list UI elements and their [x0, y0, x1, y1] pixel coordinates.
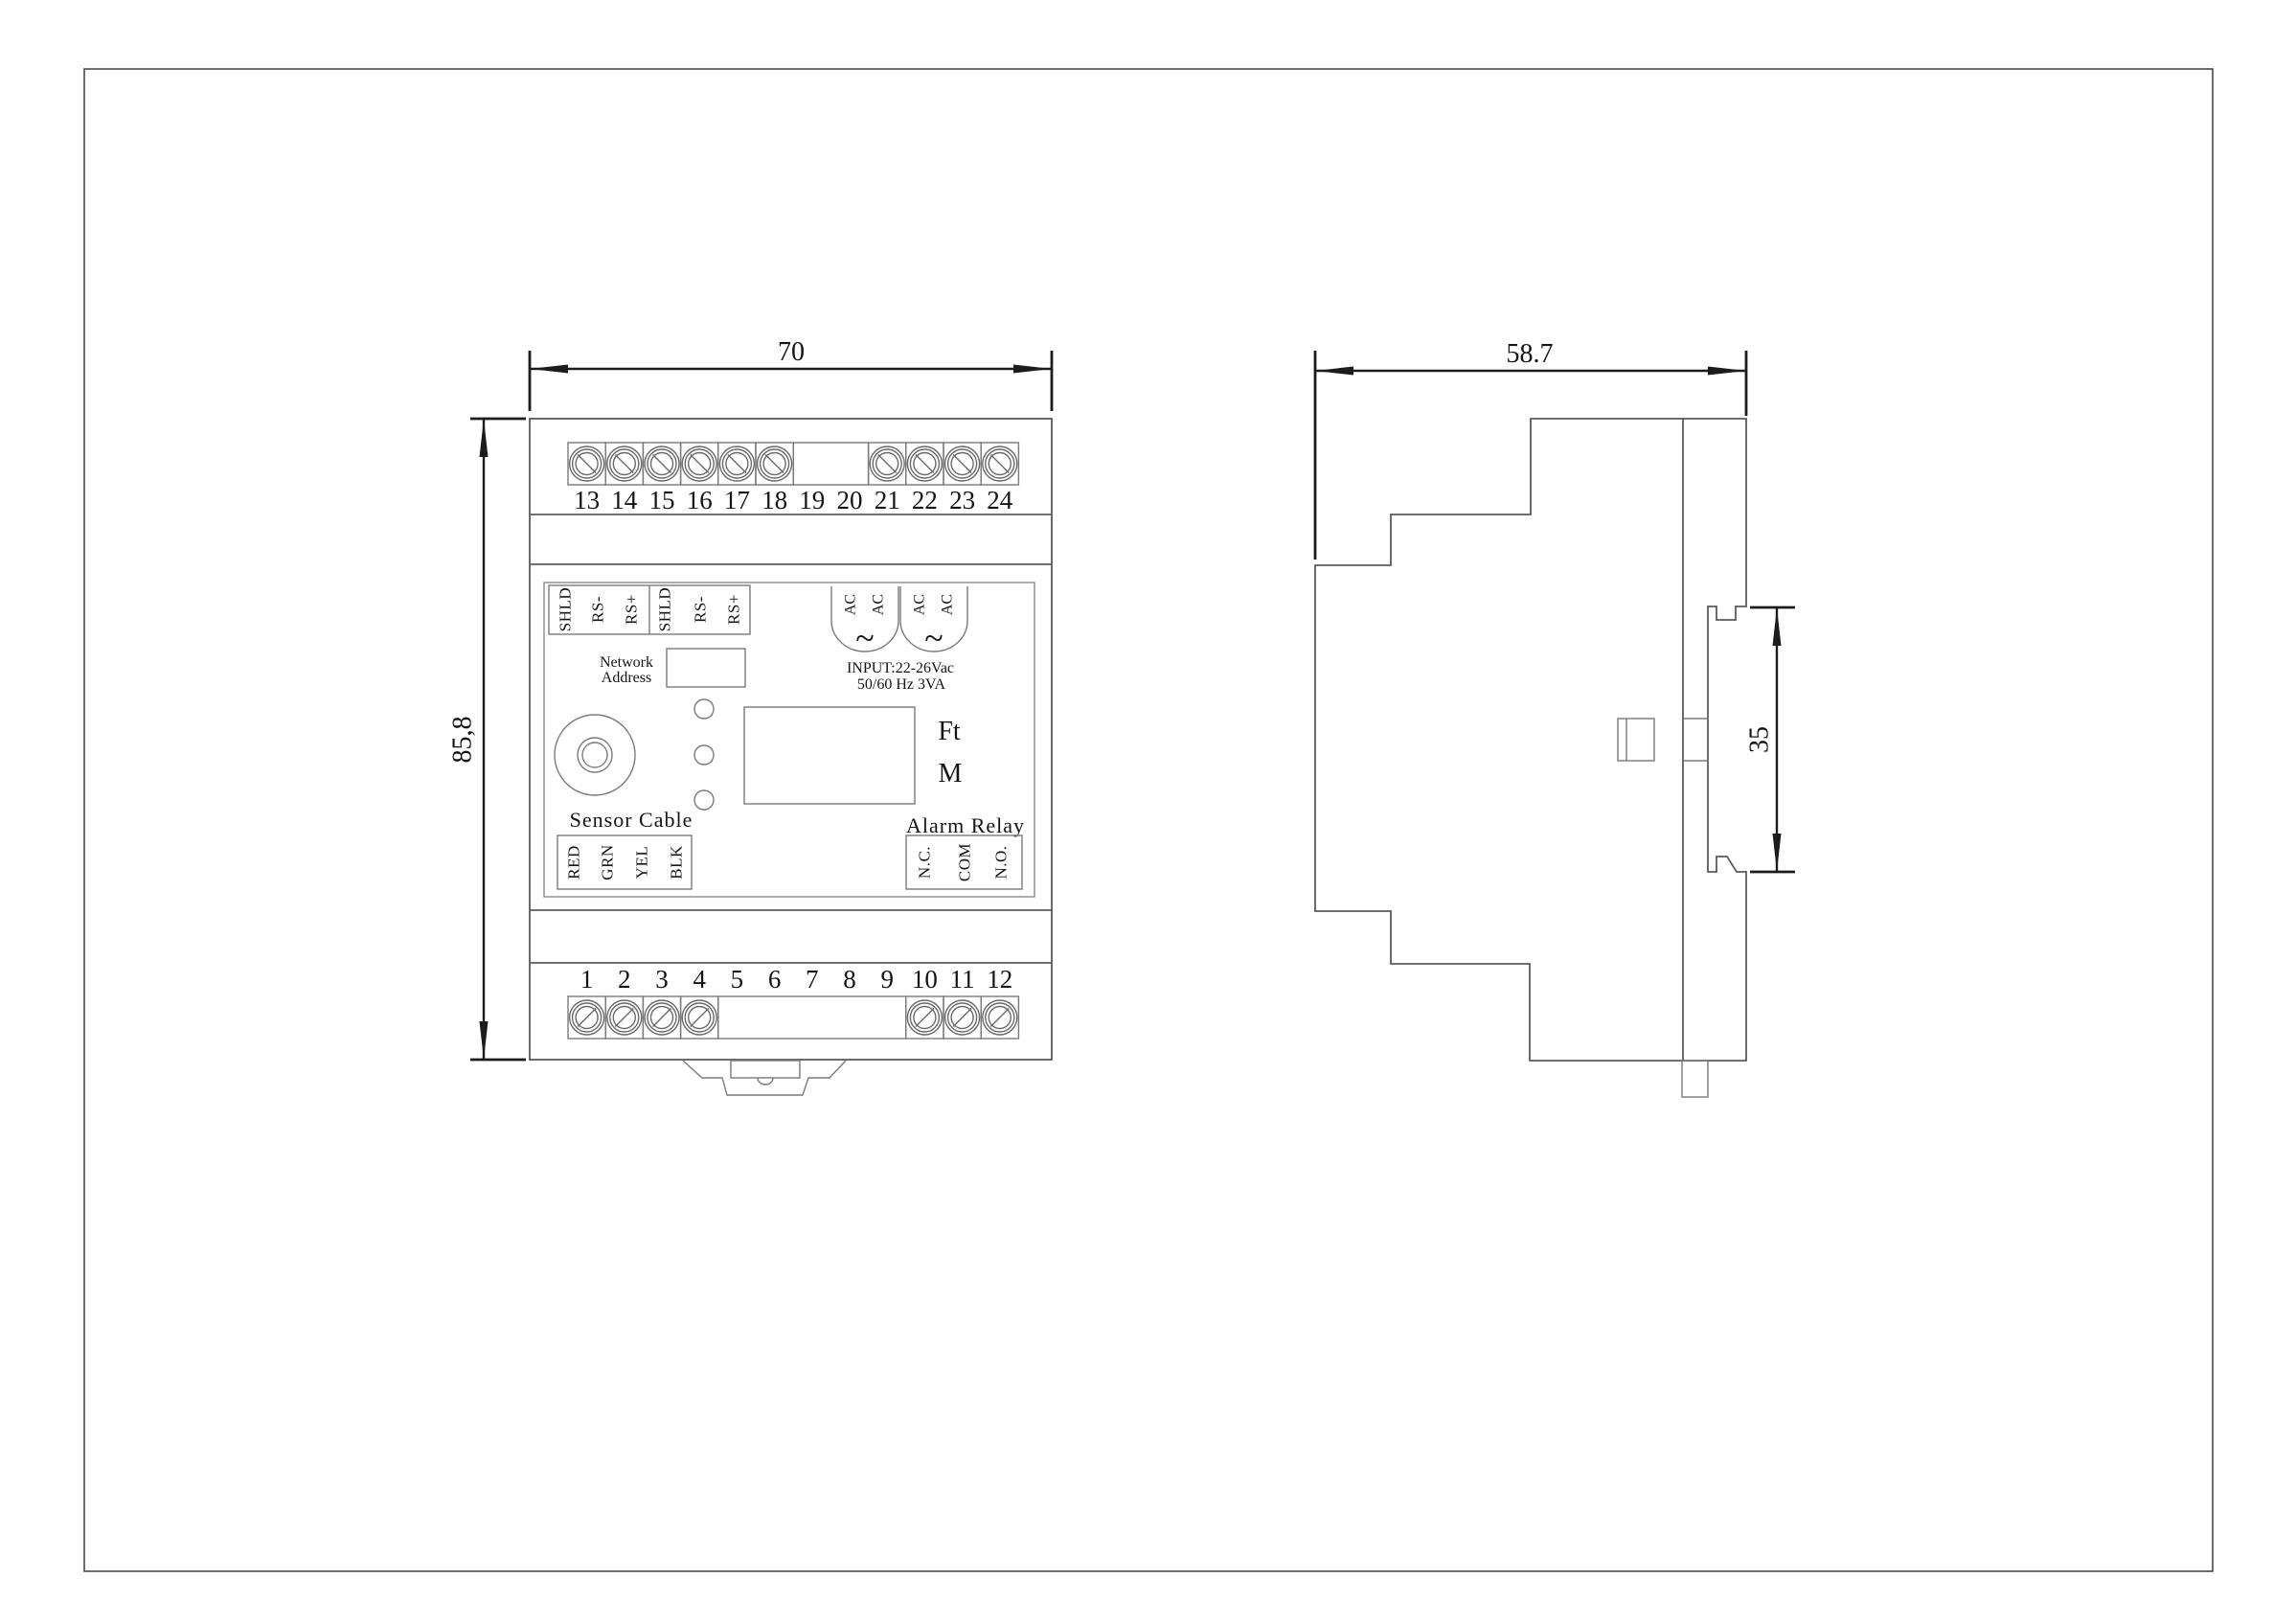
sensor-wire-label-group: RED GRN YEL BLK — [565, 844, 686, 880]
terminal-screw — [945, 1000, 980, 1035]
terminal-screw — [945, 446, 980, 481]
svg-text:8: 8 — [843, 965, 856, 994]
sensor-connector — [555, 715, 635, 795]
led-indicator — [694, 699, 714, 719]
svg-text:N.C.: N.C. — [916, 846, 934, 879]
front-view: 13 14 15 16 17 18 19 20 21 22 23 24 1 2 … — [530, 419, 1052, 1095]
svg-text:19: 19 — [799, 486, 825, 514]
svg-text:14: 14 — [611, 486, 638, 514]
side-view — [1315, 419, 1746, 1097]
svg-text:SHLD: SHLD — [656, 587, 674, 631]
network-address-line1: Network — [600, 654, 653, 671]
svg-text:24: 24 — [987, 486, 1013, 514]
svg-text:15: 15 — [649, 486, 675, 514]
alarm-relay-label: Alarm Relay — [906, 813, 1025, 837]
ac-symbol: ~ — [855, 619, 874, 657]
power-input-line1: INPUT:22-26Vac — [847, 660, 954, 676]
drawing-border — [84, 69, 2213, 1571]
terminal-screw — [719, 446, 754, 481]
terminal-screw — [682, 446, 716, 481]
terminal-screw — [607, 446, 642, 481]
terminal-screw — [607, 1000, 642, 1035]
svg-text:11: 11 — [950, 965, 975, 994]
svg-text:RS+: RS+ — [623, 594, 641, 625]
svg-text:6: 6 — [768, 965, 782, 994]
side-profile-outline — [1315, 419, 1746, 1061]
svg-text:3: 3 — [655, 965, 669, 994]
svg-text:22: 22 — [912, 486, 938, 514]
svg-text:BLK: BLK — [668, 845, 686, 880]
svg-text:N.O.: N.O. — [992, 845, 1011, 879]
led-indicator — [694, 790, 714, 810]
top-terminal-strip — [568, 443, 1018, 485]
terminal-screw — [907, 446, 942, 481]
svg-text:12: 12 — [987, 965, 1012, 994]
terminal-screw — [983, 446, 1017, 481]
bottom-blank-slot — [718, 996, 906, 1039]
svg-text:RED: RED — [565, 845, 583, 880]
din-rail-dimension: 35 — [1745, 607, 1796, 872]
front-width-dimension: 70 — [530, 337, 1052, 411]
svg-text:GRN: GRN — [599, 844, 617, 880]
din-clip-foot — [683, 1061, 846, 1095]
ac-terminal-covers: AC AC AC AC ~ ~ — [831, 586, 967, 657]
din-clip-slider — [1618, 719, 1708, 761]
svg-text:AC: AC — [940, 594, 956, 615]
network-address-box — [667, 649, 745, 687]
svg-text:7: 7 — [806, 965, 819, 994]
svg-text:AC: AC — [871, 594, 887, 615]
svg-text:COM: COM — [956, 843, 974, 881]
status-leds — [694, 699, 714, 810]
front-height-value: 85,8 — [448, 717, 478, 764]
clip-notch — [758, 1078, 773, 1085]
bottom-terminal-labels: 1 2 3 4 5 6 7 8 9 10 11 12 — [580, 965, 1012, 994]
front-height-dimension: 85,8 — [448, 419, 527, 1060]
din-rail-value: 35 — [1745, 726, 1775, 753]
bottom-terminal-strip — [568, 996, 1018, 1039]
svg-text:5: 5 — [731, 965, 744, 994]
terminal-screw — [758, 446, 792, 481]
display-window — [744, 707, 915, 804]
svg-text:21: 21 — [875, 486, 900, 514]
face-panel: SHLD RS- RS+ SHLD RS- RS+ Network Addres… — [544, 583, 1034, 897]
svg-text:AC: AC — [912, 594, 928, 615]
relay-terminal-label-group: N.C. COM N.O. — [916, 843, 1011, 881]
side-depth-value: 58.7 — [1507, 339, 1554, 369]
unit-label-ft: Ft — [938, 717, 961, 746]
network-address-line2: Address — [602, 670, 651, 686]
svg-text:20: 20 — [837, 486, 863, 514]
svg-text:10: 10 — [912, 965, 938, 994]
svg-text:4: 4 — [693, 965, 706, 994]
svg-text:RS-: RS- — [692, 596, 710, 623]
terminal-screw — [983, 1000, 1017, 1035]
svg-text:18: 18 — [762, 486, 787, 514]
front-width-value: 70 — [778, 337, 805, 367]
terminal-screw — [570, 1000, 604, 1035]
svg-text:YEL: YEL — [633, 846, 651, 880]
svg-text:AC: AC — [843, 594, 859, 615]
svg-text:9: 9 — [880, 965, 894, 994]
sensor-cable-label: Sensor Cable — [570, 808, 693, 832]
side-bottom-tab — [1682, 1061, 1708, 1097]
svg-text:16: 16 — [687, 486, 713, 514]
svg-text:2: 2 — [618, 965, 631, 994]
terminal-screw — [907, 1000, 942, 1035]
terminal-screw — [870, 446, 904, 481]
engineering-drawing: 13 14 15 16 17 18 19 20 21 22 23 24 1 2 … — [0, 0, 2296, 1623]
terminal-screw — [570, 446, 604, 481]
svg-text:17: 17 — [724, 486, 750, 514]
svg-text:RS+: RS+ — [725, 594, 743, 625]
svg-text:23: 23 — [949, 486, 975, 514]
ac-symbol: ~ — [924, 619, 943, 657]
terminal-screw — [645, 1000, 679, 1035]
top-blank-slot — [793, 443, 868, 485]
svg-text:RS-: RS- — [589, 596, 607, 623]
svg-text:13: 13 — [574, 486, 600, 514]
power-input-line2: 50/60 Hz 3VA — [857, 676, 946, 693]
led-indicator — [694, 745, 714, 765]
terminal-screw — [645, 446, 679, 481]
svg-text:SHLD: SHLD — [557, 587, 575, 631]
top-terminal-labels: 13 14 15 16 17 18 19 20 21 22 23 24 — [574, 486, 1013, 514]
unit-label-m: M — [939, 759, 963, 789]
svg-text:1: 1 — [580, 965, 594, 994]
terminal-screw — [682, 1000, 716, 1035]
